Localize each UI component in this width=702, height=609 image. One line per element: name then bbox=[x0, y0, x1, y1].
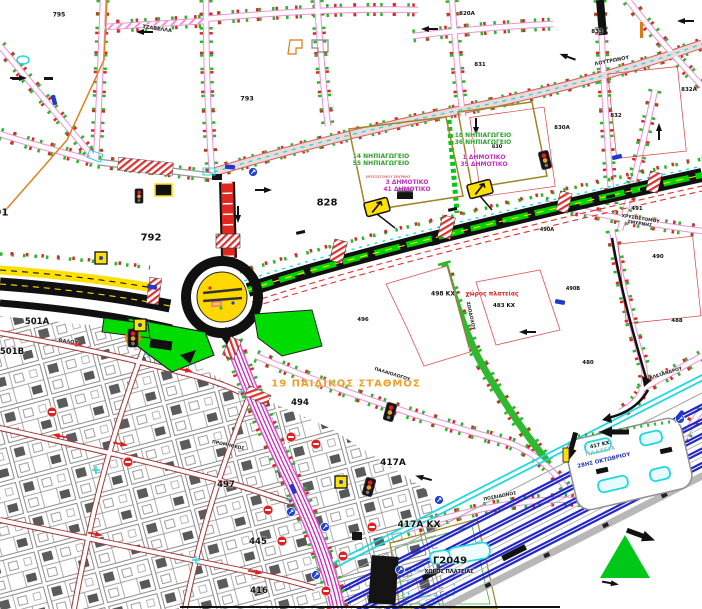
traffic-light-icon bbox=[135, 189, 143, 203]
avenue-west bbox=[0, 253, 172, 328]
parking-sign-icon bbox=[95, 252, 107, 264]
traffic-light-icon bbox=[538, 150, 552, 170]
map-graphics bbox=[0, 0, 702, 609]
signal-head-icon bbox=[397, 188, 413, 199]
warning-sign-icon bbox=[364, 197, 391, 217]
sign-icon bbox=[155, 184, 172, 196]
city-traffic-map-canvas[interactable]: 795793791792828820A833831832832A830A8305… bbox=[0, 0, 702, 609]
green-triangle-icon bbox=[600, 535, 650, 578]
traffic-light-icon bbox=[128, 329, 138, 347]
parking-sign-icon bbox=[134, 319, 146, 331]
parking-sign-icon bbox=[335, 476, 347, 488]
